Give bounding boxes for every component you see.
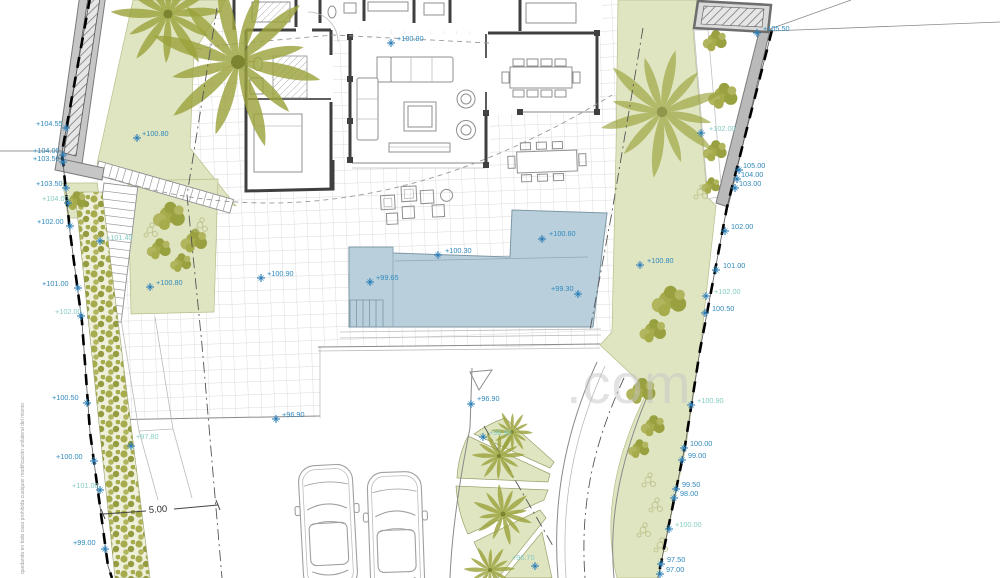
elevation-label: 105.00: [743, 161, 765, 170]
elevation-label: 97.50: [667, 555, 685, 564]
neighbour-building: [694, 1, 771, 32]
elevation-label: +105.50: [763, 24, 790, 33]
elevation-label: +96.90: [489, 428, 512, 437]
elevation-label: +104.00: [42, 194, 69, 203]
elevation-label: +102.00: [55, 307, 82, 316]
elevation-label: +102.00: [714, 287, 741, 296]
elevation-label: +101.40: [106, 233, 133, 242]
site-plan-svg: 5.00 +104.55+104.00+103.50+103.50+104.00…: [0, 0, 1000, 578]
elevation-label: 104.00: [741, 170, 763, 179]
elevation-label: +96.70: [512, 553, 535, 562]
elevation-label: +100.00: [56, 452, 83, 461]
elevation-label: +100.50: [52, 393, 79, 402]
elevation-label: +99.00: [73, 538, 96, 547]
elevation-label: +102.00: [37, 217, 64, 226]
elevation-label: +96.90: [282, 410, 305, 419]
car-icon: [362, 471, 430, 578]
elevation-label: 99.00: [688, 451, 706, 460]
elevation-label: +100.80: [156, 278, 183, 287]
elevation-label: +103.50: [36, 179, 63, 188]
armchair: [457, 121, 476, 140]
elevation-label: 100.50: [712, 304, 734, 313]
elevation-label: +100.00: [675, 520, 702, 529]
elevation-label: +96.90: [477, 394, 500, 403]
elevation-label: +100.30: [445, 246, 472, 255]
elevation-label: +99.30: [551, 284, 574, 293]
elevation-label: +99.65: [376, 273, 399, 282]
disclaimer-text: quedando en todo caso prohibida cualquie…: [20, 403, 26, 574]
elevation-label: +101.00: [72, 481, 99, 490]
armchair: [457, 90, 475, 108]
elevation-label: +101.00: [42, 279, 69, 288]
watermark: .com: [566, 352, 691, 415]
dimension-label: 5.00: [148, 504, 167, 516]
elevation-label: 97.00: [666, 565, 684, 574]
elevation-label: 101.00: [723, 261, 745, 270]
site-plan-canvas: 5.00 +104.55+104.00+103.50+103.50+104.00…: [0, 0, 1000, 578]
elevation-label: 102.00: [731, 222, 753, 231]
elevation-label: +100.60: [549, 229, 576, 238]
elevation-label: 99.50: [682, 480, 700, 489]
elevation-label: 100.00: [690, 439, 712, 448]
elevation-label: +104.55: [36, 119, 63, 128]
elevation-label: +100.80: [142, 129, 169, 138]
elevation-label: +102.00: [709, 124, 736, 133]
elevation-label: +100.90: [267, 269, 294, 278]
elevation-label: +103.50: [33, 154, 60, 163]
elevation-label: 98.00: [680, 489, 698, 498]
elevation-label: 103.00: [739, 179, 761, 188]
car-icon: [293, 463, 363, 578]
elevation-label: +100.90: [397, 34, 424, 43]
elevation-label: +97.80: [136, 432, 159, 441]
elevation-label: +100.80: [647, 256, 674, 265]
elevation-label: +100.90: [697, 396, 724, 405]
